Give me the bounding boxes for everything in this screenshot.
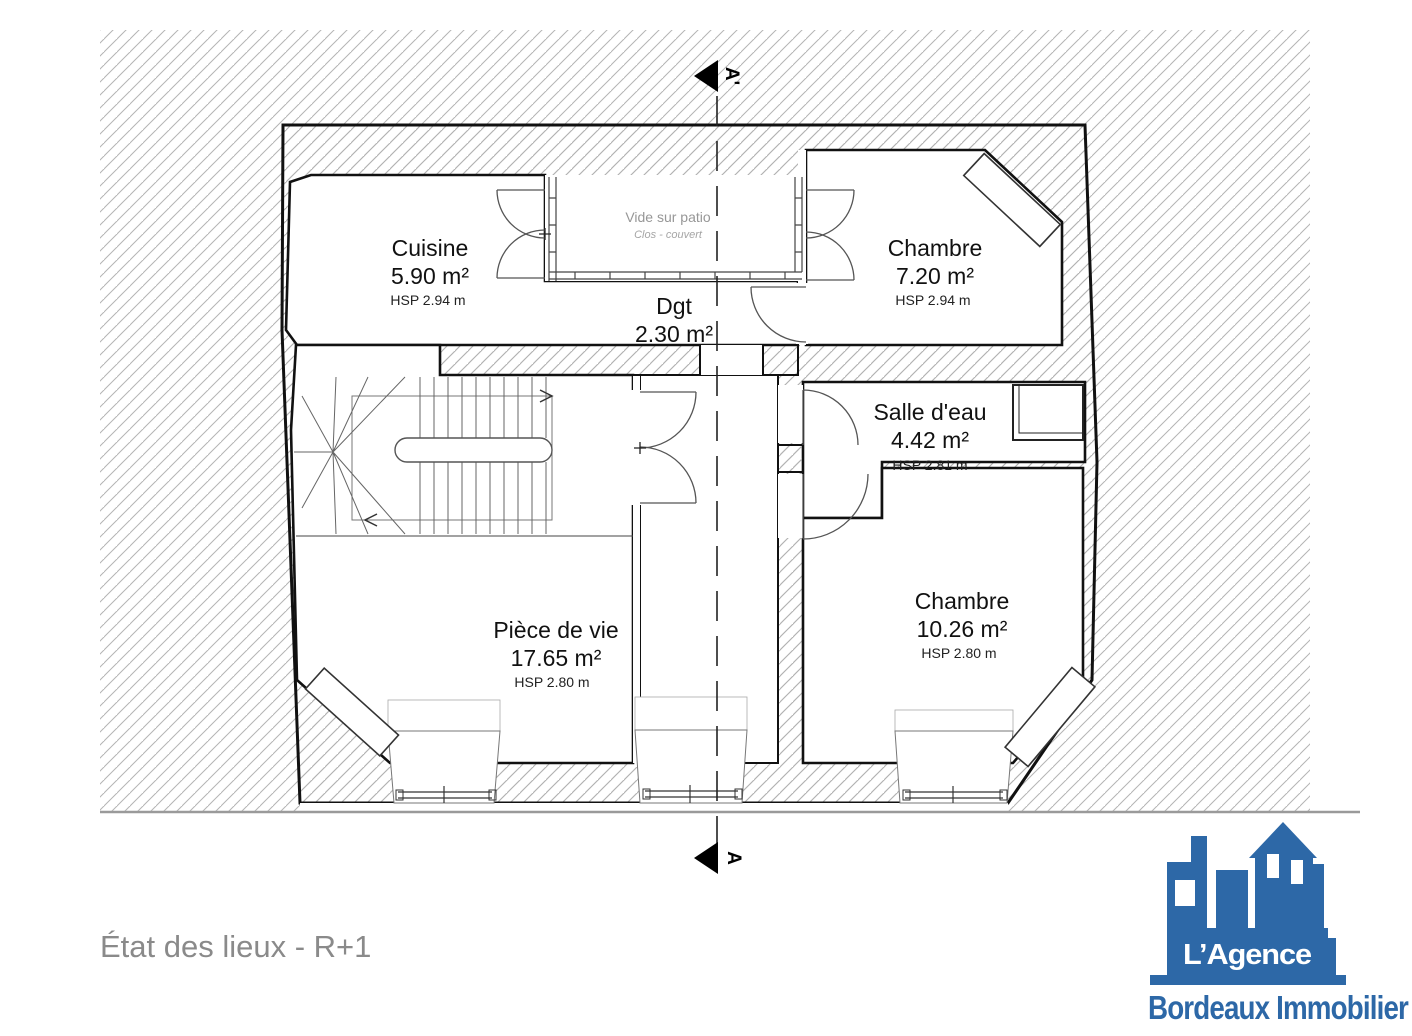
stair-handrail xyxy=(395,438,552,462)
room-name: Dgt xyxy=(656,293,692,319)
logo-window-icon xyxy=(1175,880,1195,906)
room-name: Pièce de vie xyxy=(493,617,618,643)
section-label-top: A' xyxy=(721,67,742,85)
section-arrow-bottom-icon xyxy=(694,842,718,874)
room-height: HSP 2.80 m xyxy=(921,645,996,661)
room-area: 17.65 m² xyxy=(511,645,602,671)
logo-window-icon xyxy=(1291,860,1303,884)
patio-enclosure xyxy=(545,175,802,281)
room-name: Salle d'eau xyxy=(873,399,986,425)
room-name: Cuisine xyxy=(392,235,469,261)
room-area: 10.26 m² xyxy=(917,616,1008,642)
label-chambre1: Chambre 7.20 m² HSP 2.94 m xyxy=(888,235,983,308)
patio-name: Vide sur patio xyxy=(625,209,711,225)
room-area: 7.20 m² xyxy=(896,263,974,289)
room-height: HSP 2.81 m xyxy=(892,457,967,473)
logo-text-bottom: Bordeaux Immobilier xyxy=(1148,989,1409,1026)
room-name: Chambre xyxy=(915,588,1010,614)
logo-window-icon xyxy=(1267,854,1279,878)
page-title: État des lieux - R+1 xyxy=(100,929,371,964)
doorway-dgt-chambre1 xyxy=(796,283,808,344)
room-area: 4.42 m² xyxy=(891,427,969,453)
doorway-salle-eau xyxy=(778,385,803,443)
window-corridor xyxy=(635,697,747,803)
agency-logo: L’Agence Bordeaux Immobilier xyxy=(1148,822,1409,1026)
room-name: Chambre xyxy=(888,235,983,261)
room-area: 5.90 m² xyxy=(391,263,469,289)
section-label-bottom: A xyxy=(723,851,744,865)
window-piece-de-vie xyxy=(388,700,500,803)
window-chambre2 xyxy=(895,710,1013,803)
dgt-step-opening xyxy=(700,345,763,375)
floor-plan-drawing: A' A Cuisine 5.90 m² HSP 2.94 m Chambre … xyxy=(0,0,1412,1036)
floor-plan-page: A' A Cuisine 5.90 m² HSP 2.94 m Chambre … xyxy=(0,0,1412,1036)
room-area: 2.30 m² xyxy=(635,321,713,347)
room-height: HSP 2.80 m xyxy=(514,674,589,690)
label-chambre2: Chambre 10.26 m² HSP 2.80 m xyxy=(915,588,1010,661)
patio-note: Clos - couvert xyxy=(634,229,703,241)
room-height: HSP 2.94 m xyxy=(895,292,970,308)
room-height: HSP 2.94 m xyxy=(390,292,465,308)
label-cuisine: Cuisine 5.90 m² HSP 2.94 m xyxy=(390,235,469,308)
facade-windows xyxy=(388,697,1013,803)
logo-text-top: L’Agence xyxy=(1183,939,1312,971)
doorway-chambre2 xyxy=(778,474,803,538)
